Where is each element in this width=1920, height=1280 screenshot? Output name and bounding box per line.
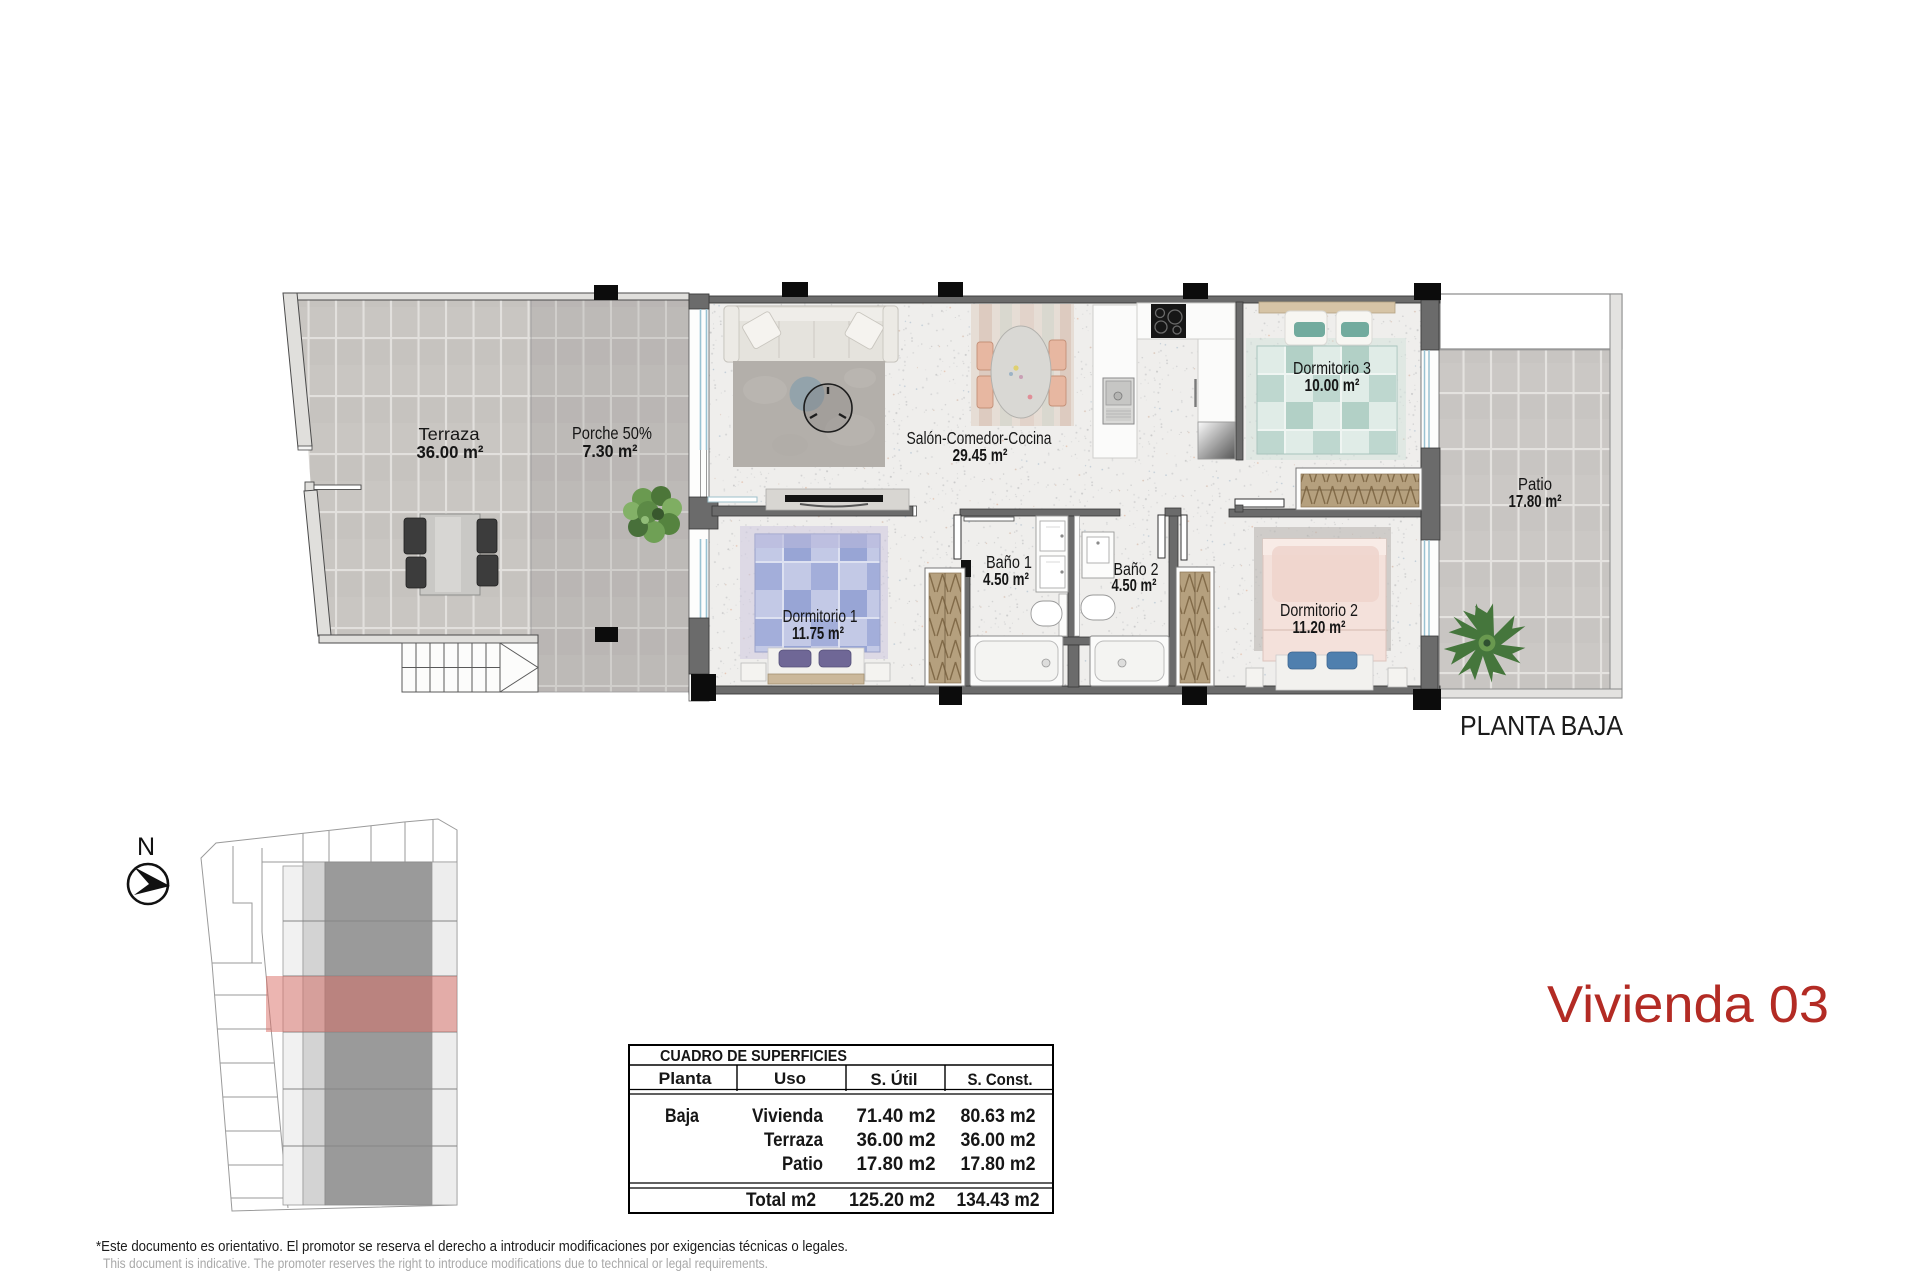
svg-text:17.80 m2: 17.80 m2 xyxy=(857,1154,936,1175)
svg-text:17.80 m2: 17.80 m2 xyxy=(961,1154,1036,1175)
svg-text:N: N xyxy=(137,833,155,861)
svg-text:*Este documento es orientativo: *Este documento es orientativo. El promo… xyxy=(96,1239,848,1255)
svg-text:Uso: Uso xyxy=(774,1069,806,1088)
svg-text:This document is indicative. T: This document is indicative. The promote… xyxy=(103,1256,768,1271)
svg-text:Terraza: Terraza xyxy=(764,1130,823,1151)
svg-text:11.20 m²: 11.20 m² xyxy=(1293,617,1346,637)
svg-text:PLANTA BAJA: PLANTA BAJA xyxy=(1460,710,1623,741)
svg-text:11.75 m²: 11.75 m² xyxy=(792,623,844,643)
svg-text:71.40 m2: 71.40 m2 xyxy=(857,1106,936,1127)
svg-text:10.00 m²: 10.00 m² xyxy=(1305,375,1360,395)
svg-text:Planta: Planta xyxy=(659,1069,713,1088)
svg-text:29.45 m²: 29.45 m² xyxy=(953,445,1008,465)
svg-text:80.63 m2: 80.63 m2 xyxy=(961,1106,1036,1127)
svg-text:Total m2: Total m2 xyxy=(746,1190,816,1211)
svg-text:Porche 50%: Porche 50% xyxy=(572,423,652,443)
svg-text:S. Útil: S. Útil xyxy=(871,1070,918,1089)
svg-text:4.50 m²: 4.50 m² xyxy=(1112,575,1157,595)
svg-text:125.20 m2: 125.20 m2 xyxy=(849,1190,935,1211)
svg-text:36.00 m2: 36.00 m2 xyxy=(857,1130,936,1151)
svg-text:S. Const.: S. Const. xyxy=(968,1070,1033,1089)
svg-text:134.43 m2: 134.43 m2 xyxy=(957,1190,1040,1211)
svg-text:Patio: Patio xyxy=(782,1154,823,1175)
svg-text:Vivienda 03: Vivienda 03 xyxy=(1547,976,1829,1034)
svg-text:Terraza: Terraza xyxy=(419,424,480,444)
svg-text:36.00 m²: 36.00 m² xyxy=(417,442,484,462)
svg-text:Baja: Baja xyxy=(665,1106,699,1127)
svg-text:7.30 m²: 7.30 m² xyxy=(583,441,638,461)
svg-text:36.00 m2: 36.00 m2 xyxy=(961,1130,1036,1151)
svg-text:CUADRO DE SUPERFICIES: CUADRO DE SUPERFICIES xyxy=(660,1048,847,1065)
svg-text:17.80 m²: 17.80 m² xyxy=(1509,491,1562,511)
svg-text:Vivienda: Vivienda xyxy=(752,1106,823,1127)
svg-text:4.50 m²: 4.50 m² xyxy=(983,569,1029,589)
